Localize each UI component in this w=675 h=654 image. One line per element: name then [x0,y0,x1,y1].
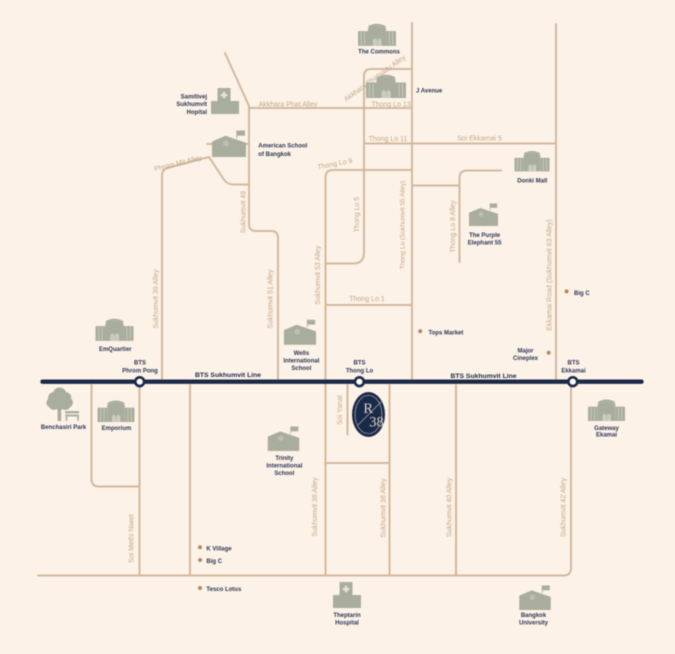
svg-text:Sukhumvit 42 Alley: Sukhumvit 42 Alley [561,477,568,537]
svg-text:Big C: Big C [574,291,590,297]
svg-text:Bangkok: Bangkok [521,613,547,619]
svg-text:Soi Yanat: Soi Yanat [337,395,344,425]
svg-text:Wells: Wells [294,351,310,357]
svg-text:Tops Market: Tops Market [429,330,464,336]
svg-text:Thong Lo 13: Thong Lo 13 [371,102,410,109]
svg-text:Theptarin: Theptarin [333,613,361,619]
svg-text:Hopital: Hopital [187,110,208,116]
svg-text:Cineplex: Cineplex [513,356,539,362]
svg-text:Thong Lo (Sukhumvit 55 Alley): Thong Lo (Sukhumvit 55 Alley) [400,181,407,270]
svg-text:EmQuartier: EmQuartier [99,347,132,353]
svg-text:The Purple: The Purple [469,233,501,239]
svg-text:Sukhumvit 38 Alley: Sukhumvit 38 Alley [381,478,388,538]
svg-text:Trinity: Trinity [275,456,294,462]
svg-text:Thong Lo 8 Alley: Thong Lo 8 Alley [450,200,457,253]
svg-text:BTS: BTS [354,361,366,367]
svg-text:Thong Lo 11: Thong Lo 11 [369,136,408,143]
svg-text:School: School [274,471,294,477]
svg-text:Sukhumvit 36 Alley: Sukhumvit 36 Alley [312,477,319,537]
svg-text:Big C: Big C [206,559,222,565]
svg-text:K Village: K Village [206,546,232,552]
svg-text:Ekamai: Ekamai [596,433,617,439]
svg-text:38: 38 [369,414,384,430]
svg-text:School: School [291,366,311,372]
svg-text:Akkhara Phat Alley: Akkhara Phat Alley [259,102,318,109]
svg-text:BTS Sukhumvit Line: BTS Sukhumvit Line [195,372,261,379]
svg-text:Soi Ekkamai 5: Soi Ekkamai 5 [457,136,502,143]
svg-text:of Bangkok: of Bangkok [258,152,291,158]
svg-text:Major: Major [517,349,534,355]
svg-text:Benchasiri Park: Benchasiri Park [41,425,87,431]
svg-text:Ekkamai Road (Sukhumvit 63 All: Ekkamai Road (Sukhumvit 63 Alley) [547,219,554,330]
svg-text:American School: American School [258,144,307,150]
svg-text:Sukhumvit: Sukhumvit [176,102,207,108]
svg-text:Thong Lo 5: Thong Lo 5 [354,197,361,233]
svg-text:Thong Lo: Thong Lo [346,368,374,374]
svg-text:University: University [519,620,549,626]
svg-text:BTS: BTS [568,361,580,367]
svg-text:BTS Sukhumvit Line: BTS Sukhumvit Line [450,373,516,380]
svg-text:International: International [266,463,302,469]
svg-text:Ekkamai: Ekkamai [561,368,586,374]
svg-text:Sukhumvit 51 Alley: Sukhumvit 51 Alley [268,269,275,329]
svg-text:The Commons: The Commons [358,50,400,56]
svg-text:Elephant 55: Elephant 55 [468,241,502,247]
svg-text:Sukhumvit 49: Sukhumvit 49 [241,191,248,234]
svg-text:Tesco Lotus: Tesco Lotus [206,587,242,593]
svg-text:J Avenue: J Avenue [416,88,443,94]
svg-text:Hospital: Hospital [335,620,359,626]
svg-text:Phrom Pong: Phrom Pong [122,368,158,374]
svg-text:Emporium: Emporium [102,426,132,432]
svg-text:Gateway: Gateway [594,426,619,432]
svg-text:International: International [283,359,319,365]
svg-text:Sukhumvit 39 Alley: Sukhumvit 39 Alley [153,269,160,329]
svg-text:Sukhumvit 40 Alley: Sukhumvit 40 Alley [447,477,454,537]
svg-text:Samitivej: Samitivej [181,95,208,101]
svg-text:Thong Lo 1: Thong Lo 1 [349,296,385,303]
svg-text:Sukhumvit 53 Alley: Sukhumvit 53 Alley [315,245,322,305]
svg-text:Donki Mall: Donki Mall [517,179,547,185]
svg-text:Soi Methi Niwet: Soi Methi Niwet [129,514,136,563]
svg-text:BTS: BTS [134,361,146,367]
